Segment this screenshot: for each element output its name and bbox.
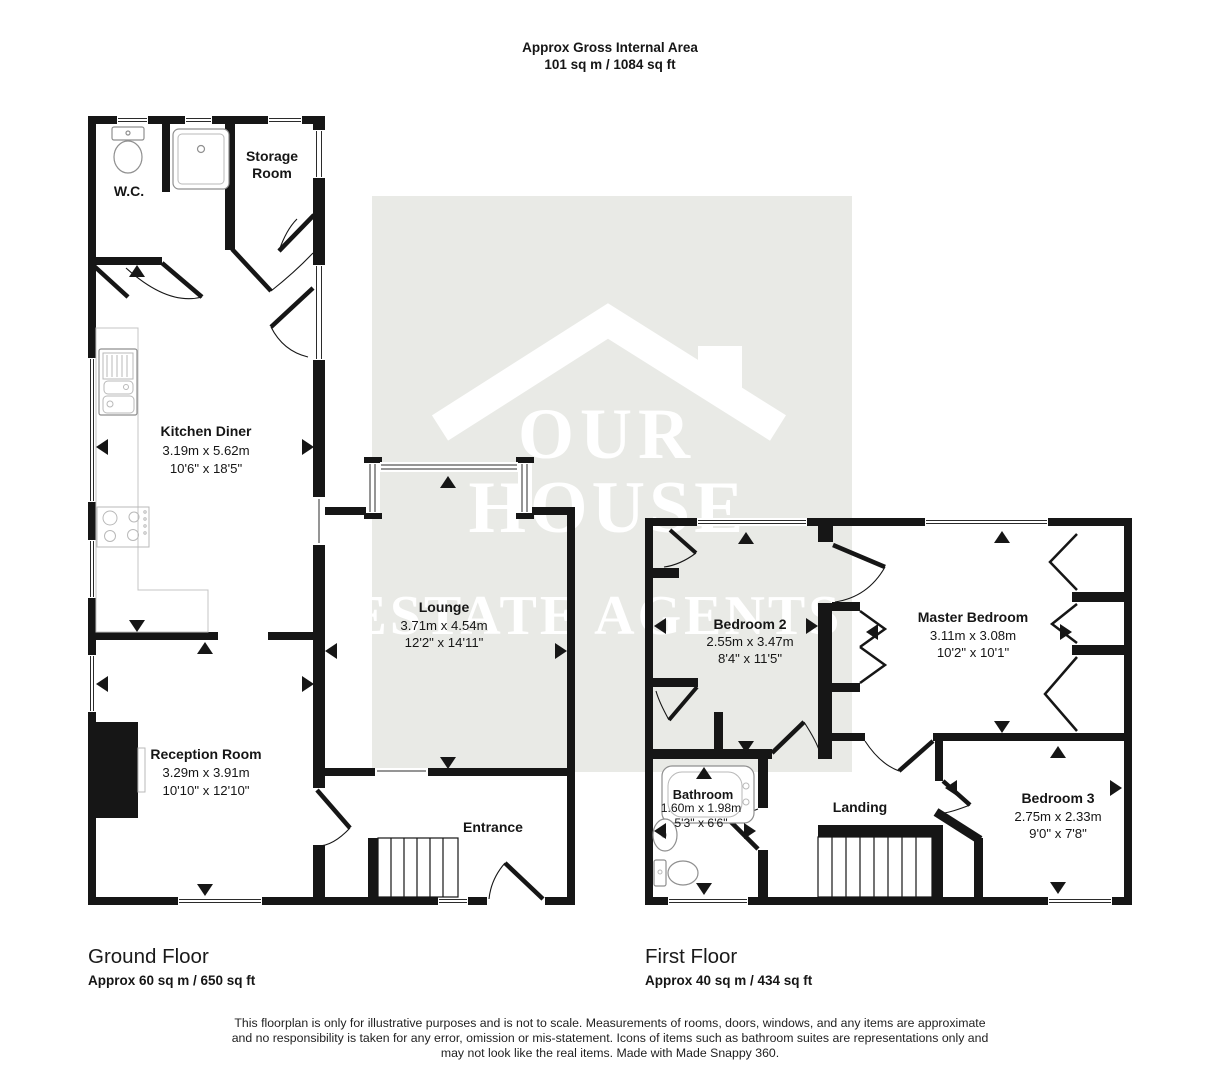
- room-label-storage-line1: Storage: [246, 148, 298, 164]
- floorplan-page: Approx Gross Internal Area 101 sq m / 10…: [0, 0, 1220, 1080]
- measure-arrow-down: [994, 721, 1010, 733]
- window: [185, 116, 212, 124]
- measure-arrow-right: [744, 823, 756, 839]
- room-dims-reception-metric: 3.29m x 3.91m: [162, 765, 249, 780]
- staircase: [368, 838, 458, 897]
- disclaimer-line3: may not look like the real items. Made w…: [441, 1046, 779, 1060]
- room-dims-lounge-imperial: 12'2" x 14'11": [405, 635, 484, 650]
- door-arc: [279, 215, 314, 251]
- door-arc: [94, 266, 128, 297]
- measure-arrow-down: [1050, 882, 1066, 894]
- first-floor-title: First Floor: [645, 945, 737, 968]
- measure-arrow-left: [325, 643, 337, 659]
- room-dims-bathroom-metric: 1.60m x 1.98m: [661, 801, 742, 815]
- window: [668, 897, 748, 905]
- measure-arrow-right: [302, 439, 314, 455]
- door-arc: [865, 741, 933, 771]
- window: [88, 358, 96, 502]
- watermark: OUR HOUSE ESTATE AGENTS: [350, 196, 852, 772]
- wall-opening: [375, 768, 428, 776]
- measure-arrow-right: [302, 676, 314, 692]
- window: [117, 116, 148, 124]
- room-label-master: Master Bedroom: [918, 609, 1028, 625]
- room-dims-kitchen-metric: 3.19m x 5.62m: [162, 443, 249, 458]
- room-label-landing: Landing: [833, 799, 887, 815]
- room-label-lounge: Lounge: [419, 599, 470, 615]
- measure-arrow-down: [197, 884, 213, 896]
- first-floor-fixtures: [653, 766, 932, 897]
- bifold-wardrobe-icon: [860, 611, 885, 683]
- watermark-text-line2: HOUSE: [468, 467, 747, 549]
- ground-floor-area: Approx 60 sq m / 650 sq ft: [88, 973, 256, 988]
- window: [88, 540, 96, 598]
- fireplace: [96, 722, 145, 818]
- door-arc: [232, 249, 313, 291]
- measure-arrow-up: [197, 642, 213, 654]
- window: [268, 116, 302, 124]
- disclaimer-line2: and no responsibility is taken for any e…: [232, 1031, 989, 1045]
- room-dims-bedroom2-imperial: 8'4" x 11'5": [718, 651, 782, 666]
- shower-icon: [173, 129, 229, 189]
- room-dims-bedroom3-imperial: 9'0" x 7'8": [1029, 826, 1087, 841]
- front-door-arc: [489, 863, 543, 899]
- window: [1048, 897, 1112, 905]
- ground-floor-title: Ground Floor: [88, 945, 209, 968]
- room-dims-kitchen-imperial: 10'6" x 18'5": [170, 461, 243, 476]
- door-arc: [313, 788, 350, 846]
- window: [313, 265, 325, 360]
- first-floor-area: Approx 40 sq m / 434 sq ft: [645, 973, 813, 988]
- disclaimer-line1: This floorplan is only for illustrative …: [234, 1016, 985, 1030]
- measure-arrow-up: [1050, 746, 1066, 758]
- disclaimer: This floorplan is only for illustrative …: [232, 1016, 989, 1060]
- room-label-entrance: Entrance: [463, 819, 523, 835]
- measure-arrow-up: [129, 265, 145, 277]
- window: [925, 518, 1048, 526]
- footer: Ground Floor Approx 60 sq m / 650 sq ft …: [88, 945, 813, 988]
- room-label-bathroom: Bathroom: [673, 787, 733, 802]
- room-label-kitchen: Kitchen Diner: [160, 423, 252, 439]
- floorplan-canvas: Approx Gross Internal Area 101 sq m / 10…: [0, 0, 1220, 1080]
- toilet-icon: [112, 127, 144, 173]
- window: [88, 655, 96, 712]
- room-dims-master-metric: 3.11m x 3.08m: [930, 628, 1016, 643]
- header: Approx Gross Internal Area 101 sq m / 10…: [522, 40, 698, 72]
- room-label-wc: W.C.: [114, 183, 144, 199]
- room-label-bedroom3: Bedroom 3: [1021, 790, 1094, 806]
- measure-arrow-down: [696, 883, 712, 895]
- room-dims-bedroom2-metric: 2.55m x 3.47m: [706, 634, 793, 649]
- window: [178, 897, 262, 905]
- room-dims-bathroom-imperial: 5'3" x 6'6": [674, 816, 727, 830]
- room-label-storage-line2: Room: [252, 165, 292, 181]
- door-arc: [271, 288, 313, 357]
- measure-arrow-left: [96, 676, 108, 692]
- page-title-line2: 101 sq m / 1084 sq ft: [544, 57, 676, 72]
- room-label-bedroom2: Bedroom 2: [713, 616, 786, 632]
- room-label-reception: Reception Room: [150, 746, 261, 762]
- page-title-line1: Approx Gross Internal Area: [522, 40, 698, 55]
- measure-arrow-right: [1110, 780, 1122, 796]
- window: [313, 130, 325, 178]
- sink-icon: [99, 349, 137, 415]
- watermark-text-line1: OUR: [518, 394, 696, 474]
- measure-arrow-up: [994, 531, 1010, 543]
- room-dims-master-imperial: 10'2" x 10'1": [937, 645, 1010, 660]
- toilet-icon: [654, 860, 698, 886]
- room-dims-lounge-metric: 3.71m x 4.54m: [400, 618, 487, 633]
- staircase: [818, 825, 932, 897]
- window: [697, 518, 807, 526]
- wall-opening: [313, 497, 325, 545]
- room-dims-reception-imperial: 10'10" x 12'10": [163, 783, 250, 798]
- window: [438, 897, 468, 905]
- room-dims-bedroom3-metric: 2.75m x 2.33m: [1014, 809, 1101, 824]
